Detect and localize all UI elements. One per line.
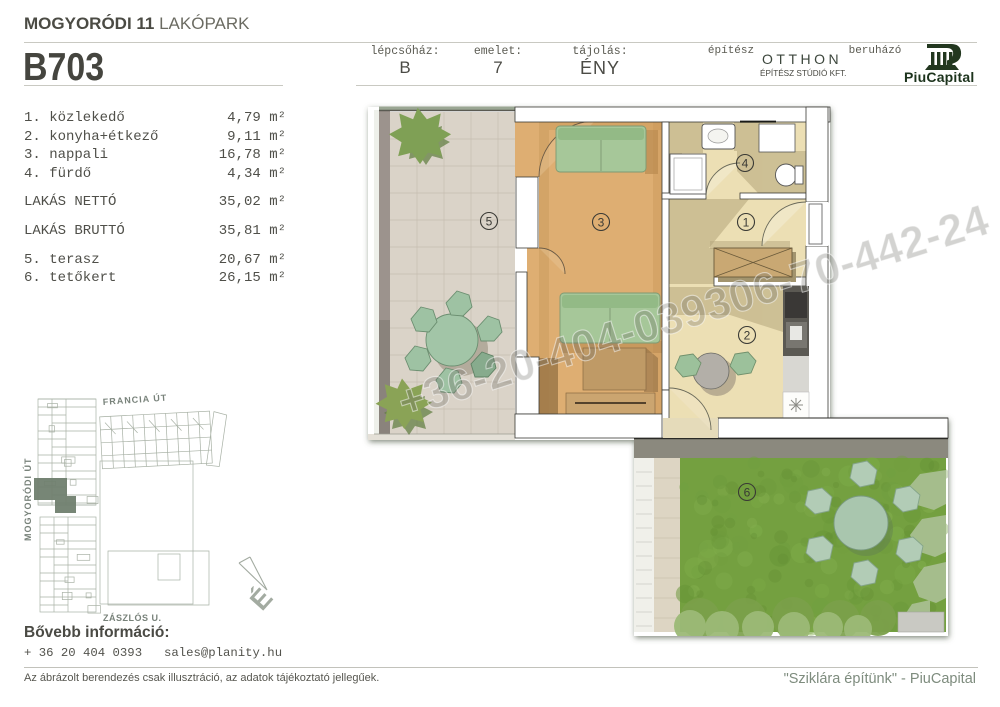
svg-text:2: 2 (744, 329, 751, 343)
svg-text:6: 6 (744, 486, 751, 500)
svg-text:3: 3 (598, 216, 605, 230)
svg-text:1: 1 (743, 216, 750, 230)
svg-text:FRANCIA ÚT: FRANCIA ÚT (102, 392, 167, 407)
svg-text:É: É (243, 582, 278, 616)
svg-text:5: 5 (486, 215, 493, 229)
svg-text:4: 4 (742, 157, 749, 171)
svg-text:ZÁSZLÓS U.: ZÁSZLÓS U. (103, 612, 162, 623)
svg-text:MOGYORÓDI ÚT: MOGYORÓDI ÚT (22, 458, 33, 542)
